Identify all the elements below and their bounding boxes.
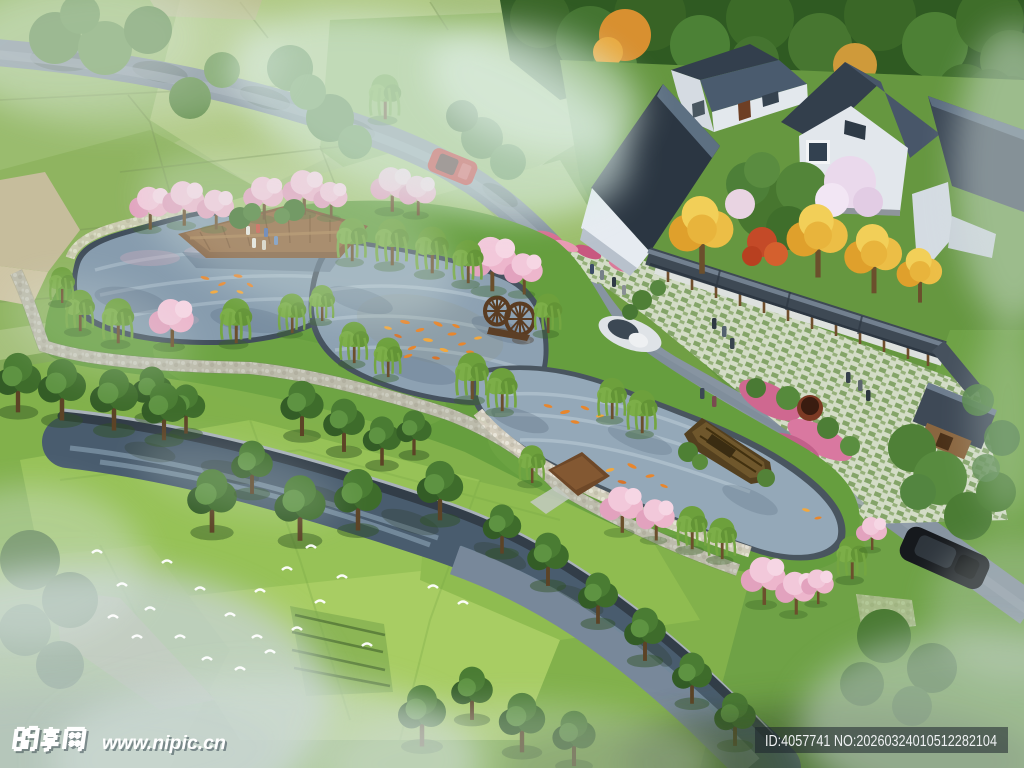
svg-text:ID:4057741 NO:2026032401051228: ID:4057741 NO:20260324010512282104 bbox=[765, 733, 997, 750]
svg-text:www.nipic.cn: www.nipic.cn bbox=[102, 732, 226, 754]
